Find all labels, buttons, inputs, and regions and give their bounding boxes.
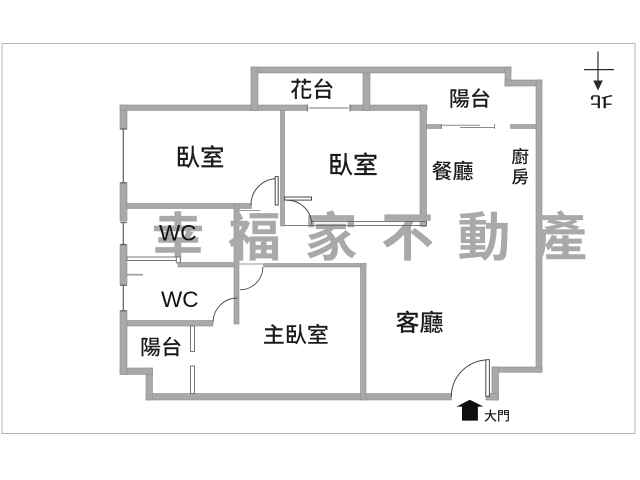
svg-text:WC: WC xyxy=(161,287,199,312)
svg-text:WC: WC xyxy=(159,221,197,246)
